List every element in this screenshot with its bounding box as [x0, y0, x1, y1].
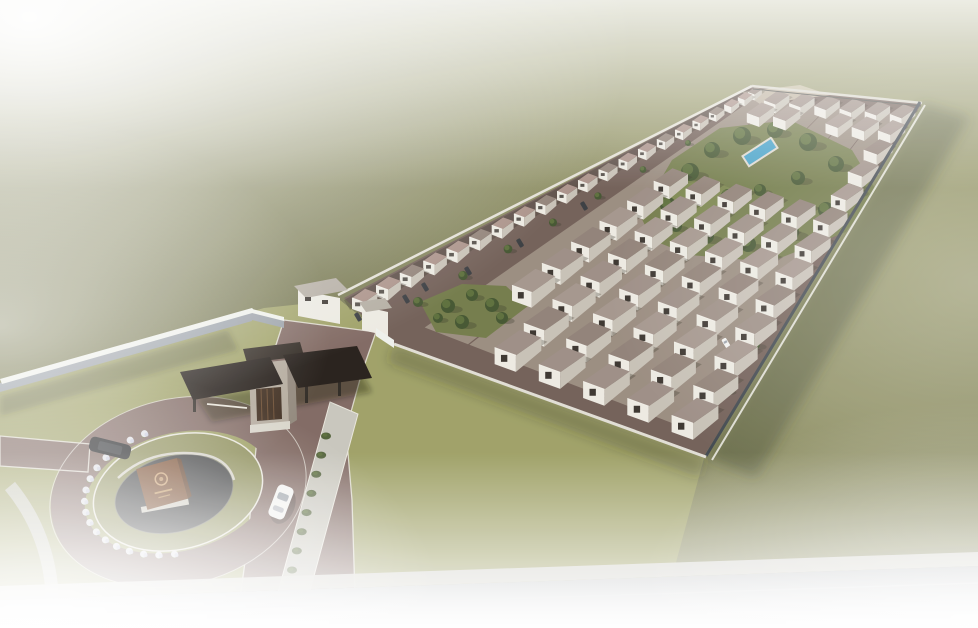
aerial-architectural-render — [0, 0, 978, 628]
render-canvas — [0, 0, 978, 628]
fog-veil — [0, 0, 978, 628]
fog-vignette — [0, 0, 978, 628]
